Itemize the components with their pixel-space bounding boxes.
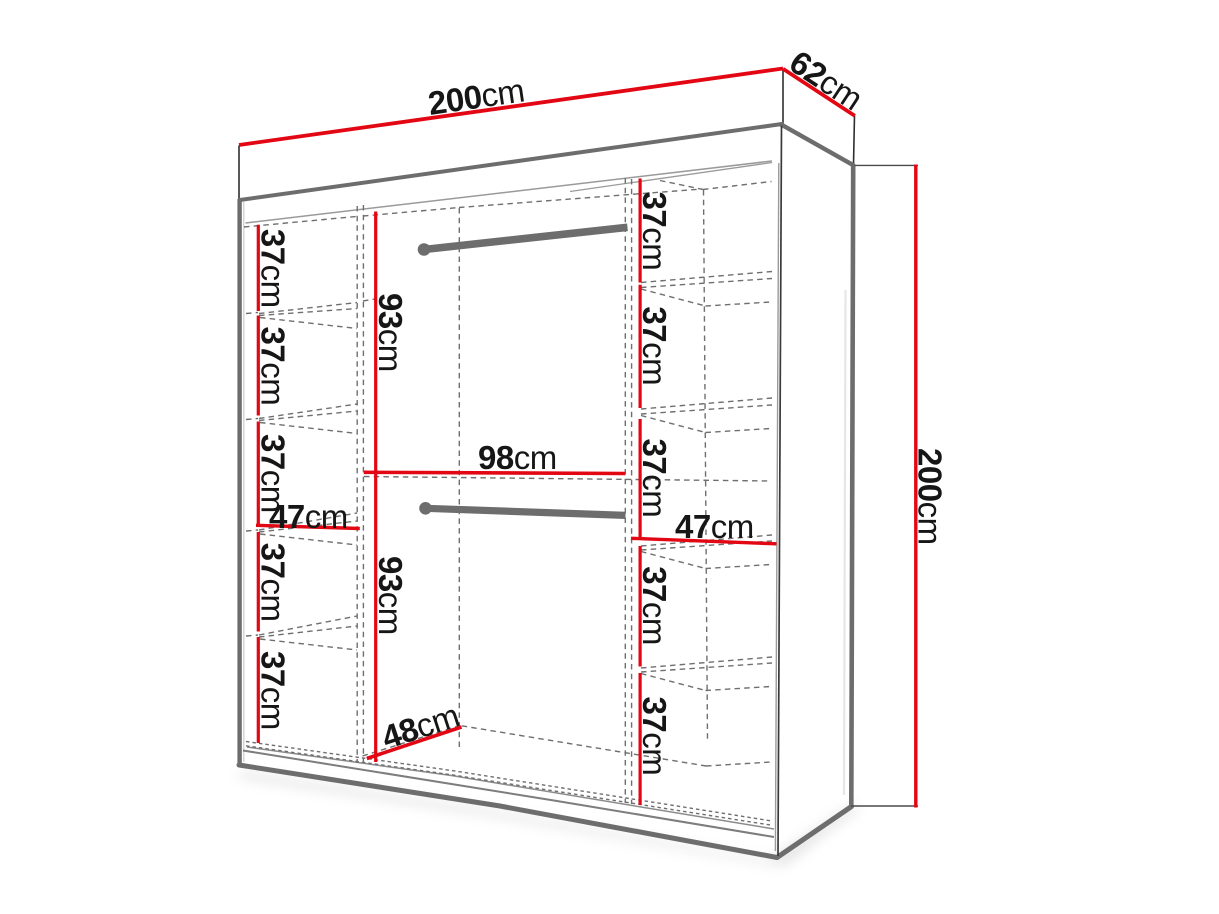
- svg-text:37cm: 37cm: [254, 543, 291, 622]
- svg-text:37cm: 37cm: [636, 192, 673, 271]
- svg-text:62cm: 62cm: [783, 43, 869, 117]
- svg-text:37cm: 37cm: [636, 306, 673, 385]
- svg-text:48cm: 48cm: [377, 696, 463, 756]
- svg-text:200cm: 200cm: [426, 71, 527, 122]
- svg-text:93cm: 93cm: [372, 556, 409, 635]
- svg-text:98cm: 98cm: [478, 439, 557, 476]
- svg-text:47cm: 47cm: [269, 498, 348, 535]
- svg-text:37cm: 37cm: [636, 439, 673, 518]
- svg-text:37cm: 37cm: [254, 327, 291, 406]
- svg-text:37cm: 37cm: [636, 566, 673, 645]
- svg-text:47cm: 47cm: [675, 508, 754, 545]
- svg-text:200cm: 200cm: [912, 448, 949, 545]
- svg-text:93cm: 93cm: [372, 293, 409, 372]
- svg-text:37cm: 37cm: [254, 651, 291, 730]
- svg-text:37cm: 37cm: [254, 229, 291, 308]
- svg-text:37cm: 37cm: [636, 697, 673, 776]
